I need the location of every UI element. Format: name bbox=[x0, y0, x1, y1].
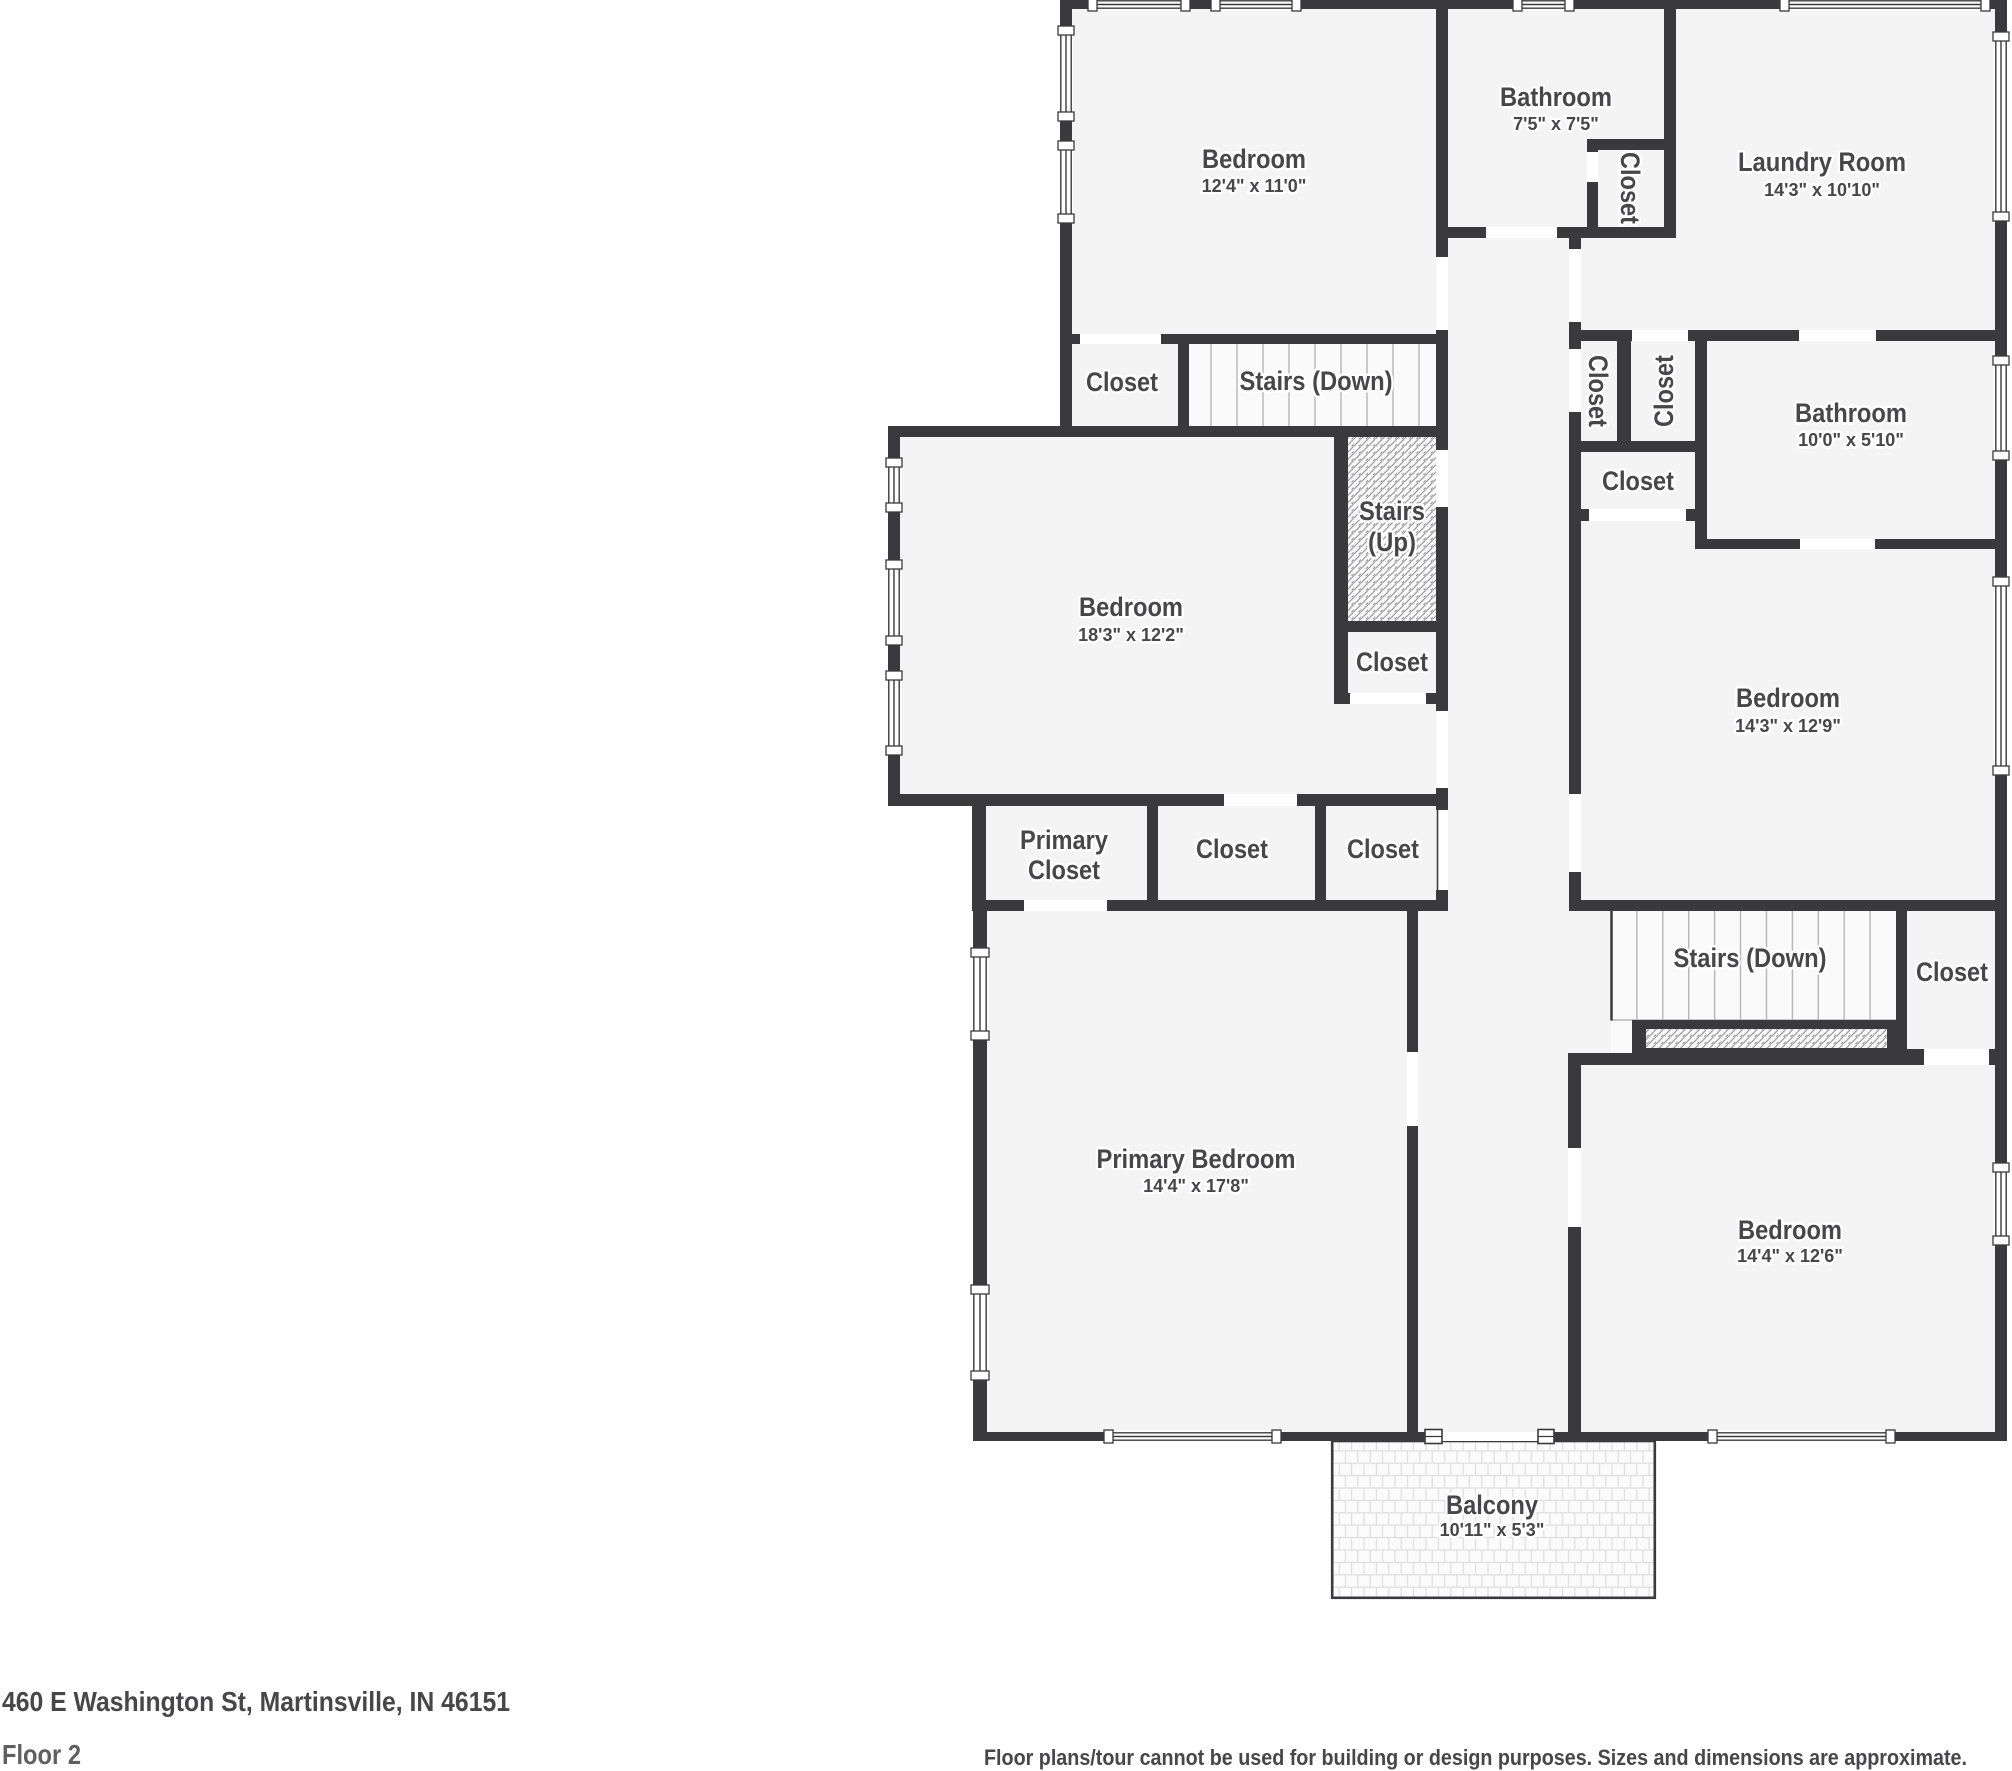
svg-text:Primary: Primary bbox=[1020, 825, 1108, 855]
svg-text:Closet: Closet bbox=[1583, 355, 1613, 427]
svg-text:Bathroom: Bathroom bbox=[1500, 82, 1612, 112]
svg-text:Closet: Closet bbox=[1196, 834, 1268, 864]
svg-text:14'4" x 12'6": 14'4" x 12'6" bbox=[1737, 1246, 1843, 1266]
svg-text:Primary Bedroom: Primary Bedroom bbox=[1097, 1144, 1296, 1174]
svg-text:Closet: Closet bbox=[1615, 152, 1645, 224]
svg-text:Closet: Closet bbox=[1086, 367, 1158, 397]
svg-text:14'4" x 17'8": 14'4" x 17'8" bbox=[1143, 1176, 1249, 1196]
svg-text:Stairs (Down): Stairs (Down) bbox=[1240, 366, 1393, 396]
svg-text:Closet: Closet bbox=[1602, 466, 1674, 496]
svg-text:Bathroom: Bathroom bbox=[1795, 398, 1907, 428]
svg-text:Balcony: Balcony bbox=[1446, 1490, 1538, 1520]
svg-text:14'3" x 10'10": 14'3" x 10'10" bbox=[1764, 180, 1880, 200]
svg-text:Floor 2: Floor 2 bbox=[2, 1739, 81, 1770]
svg-text:Bedroom: Bedroom bbox=[1736, 683, 1840, 713]
svg-text:12'4" x 11'0": 12'4" x 11'0" bbox=[1202, 176, 1307, 196]
svg-text:Stairs: Stairs bbox=[1359, 496, 1425, 526]
svg-text:18'3" x 12'2": 18'3" x 12'2" bbox=[1078, 625, 1184, 645]
svg-text:10'0" x 5'10": 10'0" x 5'10" bbox=[1798, 430, 1904, 450]
svg-text:Floor plans/tour cannot be use: Floor plans/tour cannot be used for buil… bbox=[984, 1745, 1967, 1770]
svg-text:7'5" x 7'5": 7'5" x 7'5" bbox=[1513, 114, 1599, 134]
svg-text:Closet: Closet bbox=[1356, 647, 1428, 677]
svg-text:Bedroom: Bedroom bbox=[1202, 144, 1306, 174]
svg-text:Bedroom: Bedroom bbox=[1738, 1215, 1842, 1245]
svg-text:Closet: Closet bbox=[1028, 855, 1100, 885]
svg-text:Closet: Closet bbox=[1916, 957, 1988, 987]
svg-text:Bedroom: Bedroom bbox=[1079, 592, 1183, 622]
svg-text:Closet: Closet bbox=[1347, 834, 1419, 864]
svg-text:460 E Washington St, Martinsvi: 460 E Washington St, Martinsville, IN 46… bbox=[2, 1686, 510, 1717]
svg-text:Closet: Closet bbox=[1649, 355, 1679, 427]
svg-text:Stairs (Down): Stairs (Down) bbox=[1674, 943, 1827, 973]
svg-text:(Up): (Up) bbox=[1368, 527, 1416, 557]
svg-text:10'11" x 5'3": 10'11" x 5'3" bbox=[1440, 1520, 1545, 1540]
svg-text:14'3" x 12'9": 14'3" x 12'9" bbox=[1735, 716, 1841, 736]
svg-text:Laundry Room: Laundry Room bbox=[1738, 147, 1906, 177]
